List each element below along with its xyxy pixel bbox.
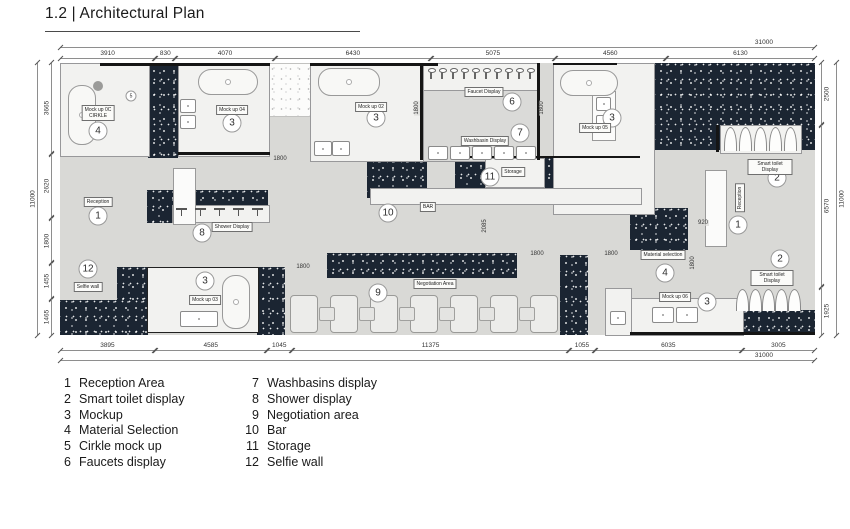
dimension-segment: 4560 [555,49,666,59]
dimension-segment: 3665 [42,63,52,154]
legend-item: 8Shower display [243,392,377,408]
legend-label: Material Selection [79,423,178,439]
dimension-segment: 31000 [60,39,815,48]
legend-label: Reception Area [79,376,164,392]
plan-marker-10: 10 [379,204,398,223]
plan-marker-3: 3 [223,114,242,133]
dimension-segment: 6130 [666,49,815,59]
dimension-segment: 11000 [836,63,847,335]
legend-label: Washbasins display [267,376,377,392]
room-label: Mock up 02 [355,102,387,112]
room-label: Mock up 06 [659,292,691,302]
dimension-segment: 11375 [292,341,569,351]
room-label: Shower Display [212,222,253,232]
legend-number: 3 [55,408,71,424]
plan-marker-7: 7 [511,124,530,143]
inner-dimension: 1800 [603,251,618,257]
architectural-plan-page: 1.2 | Architectural Plan 31000 391083040… [0,0,850,529]
plan-marker-12: 12 [79,260,98,279]
plan-marker-2: 2 [771,250,790,269]
dimension-right-total: 11000 [836,63,847,335]
title-underline [45,31,360,32]
legend-column-1: 1Reception Area2Smart toilet display3Moc… [55,376,185,471]
plan-marker-11: 11 [481,168,500,187]
room-label: Smart toilet Display [751,270,794,286]
legend-label: Mockup [79,408,123,424]
room-label: Mock up 04 [216,105,248,115]
legend-item: 1Reception Area [55,376,185,392]
room-label: Reception [84,197,113,207]
dimension-segment: 1800 [42,218,52,262]
room-label: Mock up 05 [579,123,611,133]
legend-item: 2Smart toilet display [55,392,185,408]
plan-marker-1: 1 [729,216,748,235]
dimension-top-segments: 391083040706430507545606130 [60,49,815,59]
legend-number: 2 [55,392,71,408]
legend-label: Selfie wall [267,455,323,471]
room-label: Mock up 0C CIRKLE [82,105,115,121]
dimension-segment: 3895 [60,341,155,351]
legend-number: 12 [243,455,259,471]
legend-number: 10 [243,423,259,439]
legend-label: Cirkle mock up [79,439,162,455]
legend-item: 6Faucets display [55,455,185,471]
plan-marker-8: 8 [193,224,212,243]
dimension-segment: 11000 [28,63,38,335]
legend-label: Storage [267,439,311,455]
dimension-segment: 31000 [60,351,815,361]
legend-item: 11Storage [243,439,377,455]
dimension-segment: 4585 [155,341,267,351]
inner-dimension: 1800 [414,100,420,115]
room-label: Selfie wall [74,282,103,292]
legend-number: 9 [243,408,259,424]
legend-label: Smart toilet display [79,392,185,408]
legend-label: Bar [267,423,286,439]
plan-marker-4: 4 [656,264,675,283]
legend-number: 7 [243,376,259,392]
inner-dimension: 1800 [539,100,545,115]
legend-label: Faucets display [79,455,166,471]
legend-number: 11 [243,439,259,455]
plan-marker-1: 1 [89,207,108,226]
legend-item: 10Bar [243,423,377,439]
dimension-segment: 1925 [821,287,832,335]
dimension-bottom-total: 31000 [60,351,815,361]
inner-dimension: 1800 [690,255,696,270]
room-label: Mock up 03 [189,295,221,305]
floor-plan: 4533671110321243181293Mock up 0C CIRKLEM… [60,63,815,335]
legend-item: 7Washbasins display [243,376,377,392]
dimension-segment: 830 [155,49,175,59]
plan-marker-6: 6 [503,93,522,112]
dimension-segment: 3910 [60,49,155,59]
legend-number: 4 [55,423,71,439]
dimension-segment: 6035 [595,341,742,351]
inner-dimension: 1800 [529,251,544,257]
legend-column-2: 7Washbasins display8Shower display9Negot… [243,376,377,471]
dimension-segment: 1055 [569,341,595,351]
room-label: Material selection [641,250,686,260]
legend-number: 5 [55,439,71,455]
legend-item: 4Material Selection [55,423,185,439]
legend-item: 3Mockup [55,408,185,424]
dimension-top-total: 31000 [60,39,815,48]
room-label: Storage [501,167,525,177]
dimension-segment: 6570 [821,125,832,288]
dimension-right-segments: 250065701925 [821,63,832,335]
legend-item: 5Cirkle mock up [55,439,185,455]
inner-dimension: 1800 [272,156,287,162]
legend-number: 6 [55,455,71,471]
dimension-bottom-segments: 38954585104511375105560353005 [60,341,815,351]
dimension-segment: 2620 [42,154,52,219]
legend-label: Negotiation area [267,408,359,424]
dimension-segment: 1465 [42,299,52,335]
legend-item: 9Negotiation area [243,408,377,424]
plan-marker-9: 9 [369,284,388,303]
plan-marker-3: 3 [698,293,717,312]
plan-marker-5: 5 [126,91,137,102]
legend-number: 8 [243,392,259,408]
room-label: Faucet Display [464,87,503,97]
inner-dimension: 2085 [482,218,488,233]
plan-annotations: 4533671110321243181293Mock up 0C CIRKLEM… [60,63,815,335]
legend-number: 1 [55,376,71,392]
dimension-segment: 4070 [175,49,274,59]
dimension-segment: 1455 [42,263,52,299]
plan-marker-3: 3 [196,272,215,291]
dimension-left-total: 11000 [28,63,38,335]
legend-label: Shower display [267,392,352,408]
legend-item: 12Selfie wall [243,455,377,471]
inner-dimension: 920 [697,220,709,226]
dimension-segment: 1045 [267,341,292,351]
dimension-segment: 3005 [742,341,815,351]
plan-marker-4: 4 [89,122,108,141]
room-label: BAR [420,202,436,212]
room-label: Washbasin Display [461,136,509,146]
room-label: Smart toilet Display [748,159,793,175]
room-label: Negotiation Area [414,279,457,289]
room-label: Reception [735,184,745,213]
dimension-segment: 5075 [431,49,555,59]
dimension-left-segments: 36652620180014551465 [42,63,52,335]
dimension-segment: 6430 [275,49,432,59]
page-title: 1.2 | Architectural Plan [45,5,205,23]
dimension-segment: 2500 [821,63,832,125]
inner-dimension: 1800 [295,264,310,270]
